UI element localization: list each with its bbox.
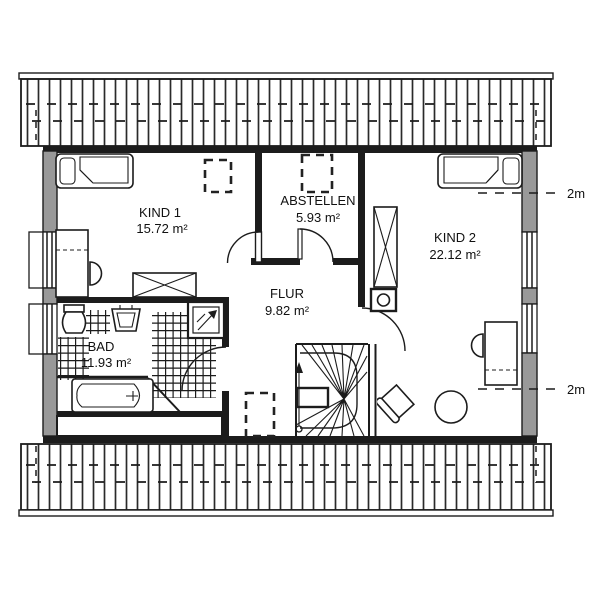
desk-icon-kind1 <box>56 230 88 297</box>
round-rug-icon <box>435 391 467 423</box>
window-east-kind2-upper <box>522 232 537 288</box>
roof-ridge-strip-bottom <box>19 510 553 516</box>
stair-well <box>297 388 328 407</box>
room-label-kind1: KIND 1 <box>139 205 181 220</box>
bed-icon <box>56 154 133 188</box>
wall-east-segment <box>522 151 537 232</box>
room-label-abstellen: ABSTELLEN <box>280 193 355 208</box>
bed-icon-kind2 <box>438 154 522 188</box>
room-label-kind2: KIND 2 <box>434 230 476 245</box>
window-east-kind2-lower <box>522 304 537 353</box>
room-area-bad: 11.93 m² <box>81 355 132 370</box>
room-area-kind2: 22.12 m² <box>429 247 481 262</box>
floor-plan-canvas: 2m 2m KIND 1 15.72 m² ABSTELLEN 5.93 m² … <box>0 0 600 600</box>
roof-band-top <box>19 73 553 146</box>
stair-east-wall <box>368 344 377 436</box>
bathtub-icon <box>72 379 153 412</box>
closet-icon <box>374 207 397 287</box>
room-area-flur: 9.82 m² <box>265 303 310 318</box>
desk-icon-kind2 <box>485 322 517 385</box>
room-label-flur: FLUR <box>270 286 304 301</box>
knee-storage-strip <box>57 416 222 436</box>
height-label: 2m <box>567 382 585 397</box>
roof-hatch-top <box>21 79 551 146</box>
room-area-kind1: 15.72 m² <box>136 221 188 236</box>
window-west-kind1 <box>29 232 57 288</box>
sink-icon <box>112 305 140 331</box>
room-area-abstellen: 5.93 m² <box>296 210 341 225</box>
wall-west-segment <box>43 354 57 436</box>
height-label: 2m <box>567 186 585 201</box>
wall-bad-east-lower <box>222 391 229 436</box>
floor-plan-page: 2m 2m KIND 1 15.72 m² ABSTELLEN 5.93 m² … <box>0 0 600 600</box>
tile-hatch <box>86 310 110 334</box>
roof-band-bottom <box>19 444 553 516</box>
window-west-bad <box>29 304 57 354</box>
room-label-bad: BAD <box>88 339 115 354</box>
wardrobe-icon-kind1 <box>133 273 196 297</box>
door-leaf-kind1 <box>256 232 262 262</box>
wall-west-segment <box>43 288 57 304</box>
shower-icon <box>188 302 224 338</box>
door-leaf-abstellen <box>298 229 302 259</box>
toilet-icon <box>63 305 86 333</box>
wall-west-segment <box>43 151 57 232</box>
wall-east-segment <box>522 353 537 436</box>
roof-hatch-bottom <box>21 444 551 510</box>
chimney-icon <box>371 289 396 311</box>
wall-south <box>43 436 537 443</box>
wall-kind2-west <box>358 153 365 307</box>
wall-kind1-abstellen <box>255 153 262 232</box>
wall-east-segment <box>522 288 537 304</box>
wall-north <box>43 146 537 153</box>
